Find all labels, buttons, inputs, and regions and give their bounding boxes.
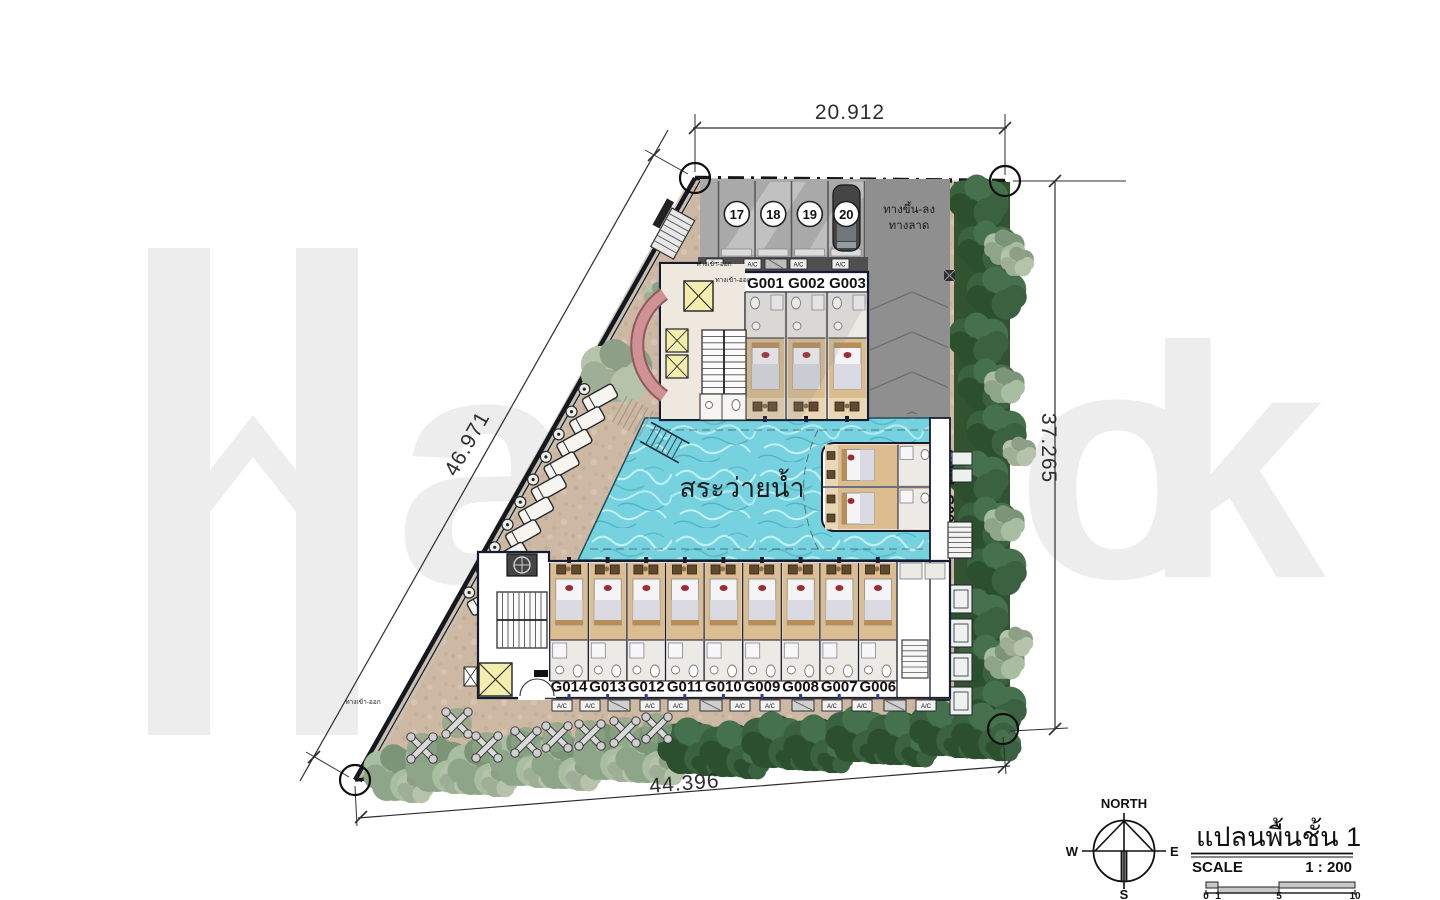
table-chair xyxy=(632,717,640,725)
bed-blanket xyxy=(556,600,583,620)
sink xyxy=(749,666,757,674)
table-chair xyxy=(564,744,572,752)
exit-sign xyxy=(534,670,548,677)
tree-foliage xyxy=(447,759,471,783)
table-chair xyxy=(407,755,415,763)
terrace-table xyxy=(797,567,802,572)
bed-blanket xyxy=(865,600,892,620)
tree-foliage xyxy=(733,759,747,773)
ac-unit-label: A/C xyxy=(747,263,758,269)
shower xyxy=(591,643,605,658)
bed-pillow-accent xyxy=(604,585,612,591)
tree-foliage xyxy=(716,720,743,747)
side-table-center xyxy=(570,410,573,413)
tree-foliage xyxy=(1008,627,1022,641)
tree-foliage xyxy=(1001,257,1014,270)
terrace-chair xyxy=(595,565,604,574)
shower xyxy=(823,643,837,658)
tree-foliage xyxy=(958,377,981,400)
balcony xyxy=(825,445,838,487)
terrace-chair xyxy=(634,565,643,574)
bed-headboard xyxy=(672,620,699,625)
dimension-right: 37.265 xyxy=(1037,413,1060,483)
toilet xyxy=(805,665,814,677)
scale-label: SCALE xyxy=(1192,859,1243,876)
tree-foliage xyxy=(825,726,849,750)
stairwell-southeast xyxy=(902,640,928,678)
bed-pillow-accent xyxy=(681,585,689,591)
bed-blanket xyxy=(633,600,660,620)
title-block: แปลนพื้นชั้น 1 SCALE 1 : 200 01510 xyxy=(1191,817,1361,900)
table-chair xyxy=(597,742,605,750)
table-chair xyxy=(407,733,415,741)
sink xyxy=(865,666,873,674)
wc-sink xyxy=(706,402,713,409)
room-label-north: G001 xyxy=(747,275,784,292)
shower xyxy=(862,643,876,658)
tree-foliage xyxy=(800,714,827,741)
ac-unit-label: A/C xyxy=(557,704,568,710)
sink xyxy=(594,666,602,674)
condenser-unit xyxy=(950,585,972,613)
side-table-center xyxy=(506,523,509,526)
toilet xyxy=(573,665,582,677)
condenser-unit xyxy=(952,469,972,482)
tree-foliage xyxy=(984,380,999,395)
guest-room-south xyxy=(627,557,665,698)
shower xyxy=(707,643,721,658)
bed-headboard xyxy=(865,620,892,625)
shower xyxy=(553,643,567,658)
tree-foliage xyxy=(958,239,981,262)
dimension-tick xyxy=(308,751,320,763)
toilet xyxy=(612,665,621,677)
scalebar-number: 10 xyxy=(1349,891,1361,900)
store-room xyxy=(925,563,945,579)
toilet xyxy=(766,665,775,677)
table-chair xyxy=(494,732,502,740)
terrace-table xyxy=(643,567,648,572)
terrace-chair xyxy=(572,565,581,574)
tree-foliage xyxy=(995,367,1012,384)
terrace-chair xyxy=(881,565,890,574)
guest-room-south xyxy=(859,557,897,698)
column xyxy=(799,557,803,563)
watermark-letter: k xyxy=(1142,278,1328,647)
toilet xyxy=(882,665,891,677)
table-chair xyxy=(632,739,640,747)
balcony-chair xyxy=(835,402,844,411)
bed-headboard xyxy=(787,620,814,625)
compass-south-label: S xyxy=(1120,887,1129,900)
tree-foliage xyxy=(985,607,1009,631)
guest-room-south xyxy=(781,557,819,698)
terrace-table xyxy=(682,567,687,572)
tree-foliage xyxy=(967,423,990,446)
balcony-chair xyxy=(827,452,835,460)
extension-line xyxy=(355,786,357,826)
bed-blanket xyxy=(710,600,737,620)
column xyxy=(567,557,571,563)
room-label-north: G002 xyxy=(788,275,825,292)
column xyxy=(683,557,687,563)
tree-foliage xyxy=(1003,447,1016,460)
terrace-table xyxy=(720,567,725,572)
sink xyxy=(633,666,641,674)
balcony xyxy=(825,488,838,530)
bed-headboard xyxy=(556,620,583,625)
compass-needle-left xyxy=(1095,821,1124,851)
guest-room-south xyxy=(588,557,626,698)
tree-foliage xyxy=(949,193,972,216)
guest-room-south xyxy=(666,557,704,698)
tree-foliage xyxy=(1020,637,1033,650)
compass-east-label: E xyxy=(1170,844,1179,859)
side-table-center xyxy=(544,455,547,458)
terrace-chair xyxy=(803,565,812,574)
guest-room-south xyxy=(704,557,742,698)
ac-unit-label: A/C xyxy=(585,704,596,710)
bed-pillow-accent xyxy=(720,585,728,591)
shower xyxy=(669,643,683,658)
bed-blanket xyxy=(860,450,874,481)
tree-foliage xyxy=(397,783,411,797)
column xyxy=(845,416,849,422)
bed-headboard xyxy=(842,493,847,524)
tree-foliage xyxy=(984,656,999,671)
entrance-exit-label-2: ทางเข้า-ออก xyxy=(715,276,750,284)
tree-foliage xyxy=(615,747,639,771)
tree-foliage xyxy=(985,469,1009,493)
tree-foliage xyxy=(982,405,1007,430)
column xyxy=(876,557,880,563)
exterior-stair-east xyxy=(948,522,972,558)
sink xyxy=(710,666,718,674)
table-chair xyxy=(564,722,572,730)
table-chair xyxy=(472,754,480,762)
bed-blanket xyxy=(826,600,853,620)
scalebar-segment xyxy=(1279,882,1355,888)
bed-pillow-accent xyxy=(565,585,573,591)
bed-headboard xyxy=(749,620,776,625)
stall-stop xyxy=(758,249,788,256)
ramp-label-line2: ทางลาด xyxy=(889,220,930,232)
stall-number: 20 xyxy=(839,207,853,222)
terrace-chair xyxy=(750,565,759,574)
stall-number: 18 xyxy=(766,207,780,222)
bed-pillow-accent xyxy=(758,585,766,591)
guest-room-east xyxy=(825,488,932,530)
ac-unit-label: A/C xyxy=(765,704,776,710)
shower xyxy=(900,447,913,460)
watermark-letter-H xyxy=(210,415,296,512)
bed-headboard xyxy=(633,620,660,625)
tree-foliage xyxy=(901,747,915,761)
north-compass: NORTH W E S xyxy=(1066,796,1179,900)
tree-foliage xyxy=(949,331,972,354)
tree-foliage xyxy=(985,331,1009,355)
bed-pillow-accent xyxy=(642,585,650,591)
ac-unit-label: A/C xyxy=(835,263,846,269)
tree-foliage xyxy=(481,777,495,791)
shower xyxy=(900,490,913,503)
tree-foliage xyxy=(967,561,990,584)
terrace-chair xyxy=(649,565,658,574)
ramp-label-line1: ทางขึ้น-ลง xyxy=(883,201,935,216)
bed-blanket xyxy=(787,600,814,620)
sink xyxy=(787,666,795,674)
table-chair xyxy=(542,722,550,730)
compass-needle-right xyxy=(1124,821,1153,851)
table-chair xyxy=(442,730,450,738)
bed-pillow-accent xyxy=(848,455,855,461)
tree-foliage xyxy=(1003,561,1027,585)
guest-room-east xyxy=(825,445,932,487)
scalebar-number: 1 xyxy=(1215,891,1221,900)
stall-number: 17 xyxy=(730,207,744,222)
table-chair xyxy=(610,739,618,747)
bed-blanket xyxy=(834,364,861,389)
bed-pillow-accent xyxy=(874,585,882,591)
ac-unit-label: A/C xyxy=(793,263,804,269)
table-chair xyxy=(511,749,519,757)
bed-blanket xyxy=(594,600,621,620)
bed-headboard xyxy=(826,620,853,625)
tree-foliage xyxy=(867,729,891,753)
side-table-center xyxy=(468,591,471,594)
tree-foliage xyxy=(1023,447,1036,460)
compass-north-label: NORTH xyxy=(1101,796,1147,811)
tree-foliage xyxy=(984,242,999,257)
tree-foliage xyxy=(995,505,1012,522)
toilet xyxy=(921,493,929,503)
tree-foliage xyxy=(982,681,1007,706)
side-table-center xyxy=(583,388,586,391)
column xyxy=(837,557,841,563)
table-chair xyxy=(575,720,583,728)
tree-foliage xyxy=(699,741,723,765)
watermark-letter-H xyxy=(148,248,210,735)
column xyxy=(760,557,764,563)
dimension-bottom: 44.396 xyxy=(649,769,721,798)
tree-foliage xyxy=(995,229,1012,246)
shower xyxy=(746,643,760,658)
tree-foliage xyxy=(817,753,831,767)
tree-foliage xyxy=(964,313,989,338)
balcony-chair xyxy=(827,514,835,522)
column xyxy=(721,557,725,563)
tree-foliage xyxy=(1009,380,1025,396)
toilet xyxy=(921,450,929,460)
side-table-center xyxy=(557,433,560,436)
table-chair xyxy=(442,708,450,716)
terrace-chair xyxy=(788,565,797,574)
side-table-center xyxy=(519,501,522,504)
table-chair xyxy=(494,754,502,762)
terrace-table xyxy=(604,567,609,572)
terrace-chair xyxy=(866,565,875,574)
balcony-chair xyxy=(809,402,818,411)
tree-foliage xyxy=(600,339,630,369)
tree-foliage xyxy=(741,732,765,756)
tree-foliage xyxy=(1011,437,1025,451)
condenser-unit xyxy=(950,687,972,715)
bed-headboard xyxy=(842,450,847,481)
stall-number: 19 xyxy=(803,207,817,222)
terrace-table xyxy=(759,567,764,572)
table-chair xyxy=(464,708,472,716)
tree-foliage xyxy=(1009,247,1023,261)
toilet xyxy=(728,665,737,677)
tree-foliage xyxy=(1021,257,1034,270)
wc-toilet xyxy=(732,400,740,411)
table-chair xyxy=(597,720,605,728)
tree-foliage xyxy=(1009,518,1025,534)
toilet xyxy=(650,665,659,677)
terrace-table xyxy=(836,567,841,572)
stall-stop xyxy=(722,249,752,256)
tree-foliage xyxy=(964,175,989,200)
bed-blanket xyxy=(749,600,776,620)
tree-foliage xyxy=(1009,656,1025,672)
toilet xyxy=(843,665,852,677)
sheet-title: แปลนพื้นชั้น 1 xyxy=(1196,817,1361,852)
bed-pillow-accent xyxy=(844,352,852,358)
ac-unit-label: A/C xyxy=(673,704,684,710)
tree-foliage xyxy=(363,764,387,788)
tree-foliage xyxy=(982,543,1007,568)
ac-unit-label: A/C xyxy=(645,704,656,710)
tree-foliage xyxy=(674,717,701,744)
tree-foliage xyxy=(1003,285,1027,309)
tree-foliage xyxy=(884,708,911,735)
sink xyxy=(672,666,680,674)
balcony xyxy=(829,398,867,419)
table-chair xyxy=(511,727,519,735)
terrace-chair xyxy=(610,565,619,574)
bed-blanket xyxy=(860,493,874,524)
tree-foliage xyxy=(783,735,807,759)
terrace-table xyxy=(566,567,571,572)
terrace-chair xyxy=(688,565,697,574)
tree-foliage xyxy=(380,744,407,771)
side-table-center xyxy=(493,546,496,549)
bed-pillow-accent xyxy=(797,585,805,591)
table-chair xyxy=(464,730,472,738)
column xyxy=(606,557,610,563)
store-room xyxy=(900,563,922,579)
terrace-chair xyxy=(842,565,851,574)
table-chair xyxy=(472,732,480,740)
bed-pillow-accent xyxy=(848,498,855,504)
terrace-chair xyxy=(673,565,682,574)
sink xyxy=(556,666,564,674)
terrace-chair xyxy=(726,565,735,574)
table-chair xyxy=(575,742,583,750)
terrace-chair xyxy=(827,565,836,574)
guest-room-south xyxy=(820,557,858,698)
sink xyxy=(826,666,834,674)
terrace-chair xyxy=(765,565,774,574)
entrance-exit-label-1: ทางเข้า-ออก xyxy=(696,260,731,268)
balcony-table xyxy=(845,404,850,409)
table-chair xyxy=(664,735,672,743)
room-label-north: G003 xyxy=(829,275,866,292)
column xyxy=(644,557,648,563)
tree-foliage xyxy=(1000,637,1013,650)
table-chair xyxy=(610,717,618,725)
site-plan-drawing: aok 17181920A/CA/CA/CA/C G001G002G003G00… xyxy=(0,0,1440,900)
guest-room-south xyxy=(550,557,588,698)
table-chair xyxy=(542,744,550,752)
floor-plan-canvas: aok 17181920A/CA/CA/CA/C G001G002G003G00… xyxy=(0,0,1440,900)
column xyxy=(804,416,808,422)
dimension-top: 20.912 xyxy=(815,101,885,124)
tree-foliage xyxy=(909,720,933,744)
condenser-unit xyxy=(950,619,972,647)
bed-headboard xyxy=(594,620,621,625)
ac-unit-label: A/C xyxy=(857,704,868,710)
compass-west-label: W xyxy=(1066,844,1079,859)
table-chair xyxy=(642,735,650,743)
bed-blanket xyxy=(672,600,699,620)
scale-bar: 01510 xyxy=(1203,882,1361,900)
balcony-chair xyxy=(827,495,835,503)
table-chair xyxy=(664,713,672,721)
stall-stop xyxy=(795,249,825,256)
watermark-letter-H xyxy=(296,248,358,735)
terrace-chair xyxy=(557,565,566,574)
scalebar-segment xyxy=(1218,887,1279,893)
bed-headboard xyxy=(710,620,737,625)
scalebar-segment xyxy=(1206,882,1218,888)
dimension-tick xyxy=(648,149,660,161)
toilet xyxy=(689,665,698,677)
pool-label: สระว่ายน้ำ xyxy=(679,468,804,503)
scalebar-number: 0 xyxy=(1203,891,1209,900)
ac-unit-label: A/C xyxy=(921,704,932,710)
guest-room-south xyxy=(743,557,781,698)
ramp-hatch xyxy=(868,282,948,414)
shower xyxy=(630,643,644,658)
tree-foliage xyxy=(967,285,990,308)
tree-foliage xyxy=(984,518,999,533)
condenser-unit xyxy=(952,452,972,465)
scale-value: 1 : 200 xyxy=(1305,859,1352,876)
tree-foliage xyxy=(565,771,579,785)
terrace-chair xyxy=(711,565,720,574)
stairwell-southwest xyxy=(497,592,547,648)
side-table-center xyxy=(532,478,535,481)
tree-foliage xyxy=(951,723,975,747)
tree-foliage xyxy=(982,267,1007,292)
balcony-chair xyxy=(827,471,835,479)
car-rear-window xyxy=(837,242,856,248)
tree-foliage xyxy=(758,711,785,738)
stairwell-north xyxy=(702,330,746,394)
entrance-exit-label-3: ทางเข้า-ออก xyxy=(345,698,380,706)
table-chair xyxy=(429,733,437,741)
table-chair xyxy=(429,755,437,763)
scalebar-number: 5 xyxy=(1276,891,1282,900)
condenser-unit xyxy=(950,653,972,681)
bed-pillow-accent xyxy=(835,585,843,591)
table-chair xyxy=(533,727,541,735)
table-chair xyxy=(642,713,650,721)
ac-unit-label: A/C xyxy=(735,704,746,710)
ac-unit-label: A/C xyxy=(827,704,838,710)
table-chair xyxy=(533,749,541,757)
